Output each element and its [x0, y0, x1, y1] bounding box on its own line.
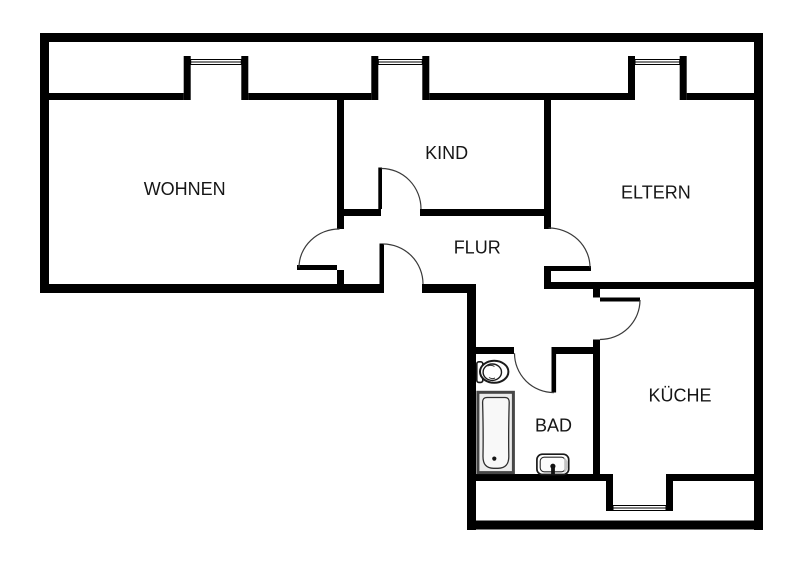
svg-text:ELTERN: ELTERN	[621, 183, 691, 203]
svg-text:WOHNEN: WOHNEN	[144, 179, 226, 199]
svg-text:FLUR: FLUR	[454, 238, 501, 258]
svg-text:BAD: BAD	[535, 415, 572, 435]
svg-text:KIND: KIND	[425, 143, 468, 163]
svg-text:KÜCHE: KÜCHE	[648, 385, 711, 405]
